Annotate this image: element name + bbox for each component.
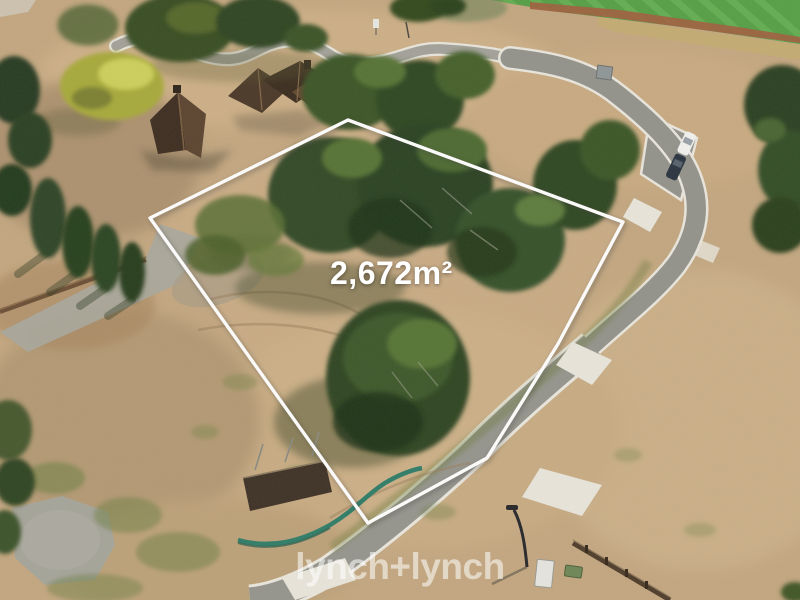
aerial-photo-land-listing: 2,672m² lynch+lynch: [0, 0, 800, 600]
aerial-photo-canvas: [0, 0, 800, 600]
photo-grain: [0, 0, 800, 600]
